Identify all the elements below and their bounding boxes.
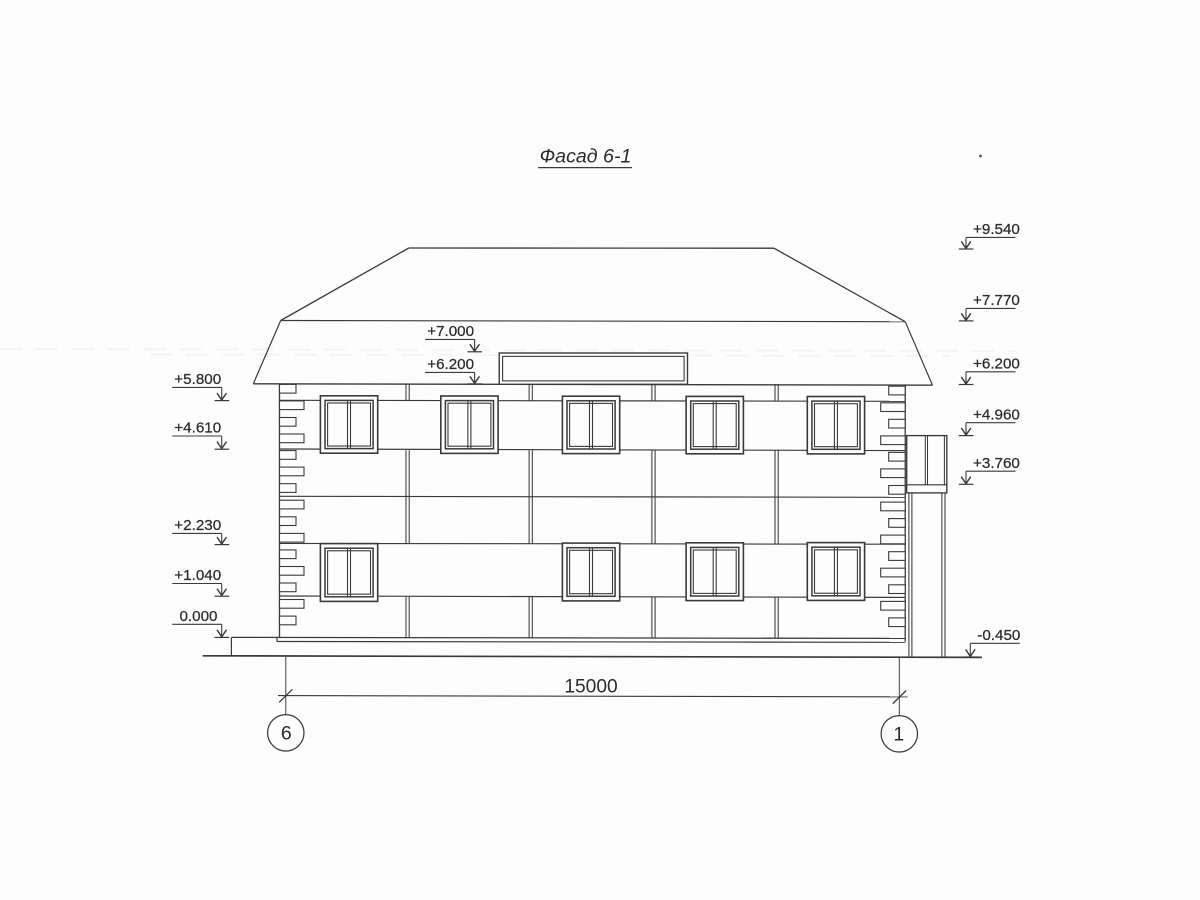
svg-text:+4.610: +4.610 (174, 420, 221, 437)
svg-text:1: 1 (893, 724, 904, 746)
svg-text:+5.800: +5.800 (174, 371, 221, 388)
svg-text:+6.200: +6.200 (973, 355, 1020, 372)
svg-text:+7.000: +7.000 (427, 323, 474, 340)
svg-text:+6.200: +6.200 (427, 356, 474, 373)
svg-text:15000: 15000 (564, 677, 617, 698)
svg-text:+1.040: +1.040 (174, 567, 221, 584)
svg-text:6: 6 (281, 723, 292, 745)
svg-text:Фасад 6-1: Фасад 6-1 (540, 146, 632, 168)
svg-text:-0.450: -0.450 (977, 627, 1020, 644)
svg-text:+2.230: +2.230 (174, 517, 221, 534)
svg-text:+3.760: +3.760 (973, 455, 1020, 472)
svg-text:0.000: 0.000 (179, 608, 217, 625)
svg-text:+9.540: +9.540 (973, 221, 1020, 238)
svg-text:+7.770: +7.770 (973, 292, 1020, 309)
svg-text:+4.960: +4.960 (973, 406, 1020, 423)
